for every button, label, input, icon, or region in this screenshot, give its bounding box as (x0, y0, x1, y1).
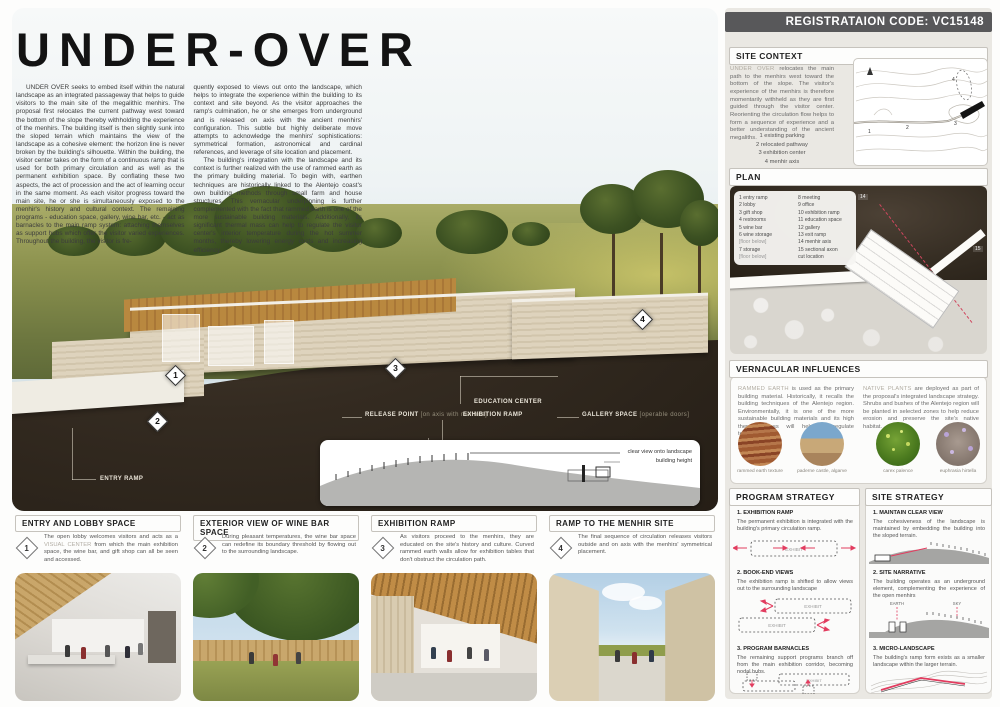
site-context-legend: 1 existing parking 2 relocated pathway 3… (730, 132, 834, 167)
caption: euphrasia hirtella (923, 469, 993, 474)
program-strategy-header: PROGRAM STRATEGY (729, 488, 860, 506)
site-item-2-heading: 2. SITE NARRATIVE (873, 570, 925, 576)
panel-menhir-site: RAMP TO THE MENHIR SITE 4 The final sequ… (549, 515, 715, 701)
plan-label-15: 15 (973, 246, 983, 252)
presentation-board: 1 2 3 4 ENTRY RAMP WINE BAR AREA [operab… (0, 0, 1000, 707)
panel-1-number: 1 (16, 537, 39, 560)
intro-col1: UNDER OVER seeks to embed itself within … (16, 84, 185, 247)
photo-wine-bar (193, 573, 359, 701)
elevation-label-building-height: building height (656, 458, 692, 464)
leader-line (72, 428, 73, 480)
panel-1-title: ENTRY AND LOBBY SPACE (15, 515, 181, 532)
svg-text:4: 4 (952, 77, 955, 83)
tree (680, 200, 718, 246)
svg-text:EXHIBIT: EXHIBIT (768, 623, 786, 628)
svg-text:1: 1 (868, 129, 871, 135)
leader-line (342, 417, 362, 418)
intro-col2-p2: The building's integration with the land… (194, 157, 363, 255)
tree-trunk (660, 233, 663, 303)
plan-header: PLAN (729, 168, 988, 186)
site-item-3-heading: 3. MICRO-LANDSCAPE (873, 646, 935, 652)
sidebar: REGISTRATAION CODE: VC15148 SITE CONTEXT… (725, 8, 992, 699)
panel-2-text: During pleasant temperatures, the wine b… (222, 534, 356, 557)
vernacular-header: VERNACULAR INFLUENCES (729, 360, 988, 378)
program-item-3-heading: 3. PROGRAM BARNACLES (737, 646, 809, 652)
site-item-1-heading: 1. MAINTAIN CLEAR VIEW (873, 510, 943, 516)
legend-item: 1 existing parking (730, 132, 834, 141)
photo-menhir-ramp (549, 573, 715, 701)
program-diagram-2: EXHIBIT EXHIBIT (733, 596, 857, 638)
intro-text: UNDER OVER seeks to embed itself within … (16, 84, 362, 255)
leader-line (72, 479, 96, 480)
photo-rammed-earth (738, 422, 782, 466)
elevation-label-clear-view: clear view onto landscape (628, 449, 692, 455)
registration-code: REGISTRATAION CODE: VC15148 (725, 12, 992, 32)
program-diagram-3: EXHIBIT (733, 672, 857, 694)
site-item-3-text: The building's ramp form exists as a sma… (873, 655, 985, 669)
panel-1-text: The open lobby welcomes visitors and act… (44, 534, 178, 564)
callout-education-center: EDUCATION CENTER (474, 399, 542, 405)
photo-paderne-castle (800, 422, 844, 466)
callout-gallery-space: GALLERY SPACE [operable doors] (582, 412, 689, 418)
caption: paderne castle, algarve (787, 469, 857, 474)
svg-text:SKY: SKY (953, 601, 962, 606)
leader-line (460, 376, 461, 404)
panel-3-number: 3 (372, 537, 395, 560)
caption: rammed earth texture (725, 469, 795, 474)
elevation-inset: clear view onto landscape building heigh… (320, 440, 700, 506)
program-item-2-heading: 2. BOOK-END VIEWS (737, 570, 793, 576)
leader-line (557, 417, 579, 418)
glass-wall (208, 326, 254, 366)
photo-euphrasia (936, 422, 980, 466)
program-item-1-text: The permanent exhibition is integrated w… (737, 519, 853, 533)
site-strategy-header: SITE STRATEGY (865, 488, 992, 506)
svg-text:3: 3 (954, 121, 957, 127)
panel-3-text: As visitors proceed to the menhirs, they… (400, 534, 534, 564)
program-item-2-text: The exhibition ramp is shifted to allow … (737, 579, 853, 593)
svg-text:2: 2 (906, 125, 909, 131)
photo-entry-lobby (15, 573, 181, 701)
panel-exhibition-ramp: EXHIBITION RAMP 3 As visitors proceed to… (371, 515, 537, 701)
building-right-wing (512, 295, 708, 360)
site-context-map: 1 2 3 4 (853, 58, 988, 166)
plan-drawing: 14 15 1 entry ramp 2 lobby 3 gift shop 4… (730, 186, 987, 354)
panel-wine-bar: EXTERIOR VIEW OF WINE BAR SPACE 2 During… (193, 515, 359, 701)
plan-legend-left: 1 entry ramp 2 lobby 3 gift shop 4 restr… (739, 195, 792, 261)
glass-wall (162, 314, 200, 362)
svg-text:EXHIBIT: EXHIBIT (785, 547, 803, 552)
program-item-1-heading: 1. EXHIBITION RAMP (737, 510, 793, 516)
legend-item: 4 menhir axis (730, 158, 834, 167)
photo-carex-plant (876, 422, 920, 466)
tree-trunk (612, 223, 615, 303)
plan-label-14: 14 (858, 194, 868, 200)
glass-wall (264, 320, 294, 364)
board-title: UNDER-OVER (16, 22, 422, 77)
svg-text:EARTH: EARTH (890, 601, 904, 606)
leader-line (460, 376, 558, 377)
panel-entry-lobby: ENTRY AND LOBBY SPACE 1 The open lobby w… (15, 515, 181, 701)
panel-4-text: The final sequence of circulation releas… (578, 534, 712, 557)
legend-item: 2 relocated pathway (730, 141, 834, 150)
tree (436, 210, 508, 254)
svg-text:EXHIBIT: EXHIBIT (804, 604, 822, 609)
legend-item: 3 exhibition center (730, 149, 834, 158)
callout-entry-ramp: ENTRY RAMP (100, 476, 143, 482)
site-map-drawing: 1 2 3 4 (854, 59, 988, 166)
panel-3-title: EXHIBITION RAMP (371, 515, 537, 532)
photo-exhibition-ramp (371, 573, 537, 701)
site-diagram-3 (869, 670, 989, 694)
site-diagram-2: EARTH SKY (869, 598, 989, 638)
site-diagram-1 (869, 536, 989, 564)
program-diagram-1: EXHIBIT (733, 536, 857, 562)
callout-exhibition-ramp: EXHIBITION RAMP (463, 412, 523, 418)
plan-legend-right: 8 meeting 9 office 10 exhibition ramp 11… (798, 195, 851, 261)
panel-4-number: 4 (550, 537, 573, 560)
panel-2-number: 2 (194, 537, 217, 560)
tree (356, 218, 402, 248)
panel-4-title: RAMP TO THE MENHIR SITE (549, 515, 715, 532)
plan-legend: 1 entry ramp 2 lobby 3 gift shop 4 restr… (734, 191, 856, 265)
tree (512, 222, 550, 246)
intro-col2-p1: quently exposed to views out onto the la… (194, 84, 363, 157)
